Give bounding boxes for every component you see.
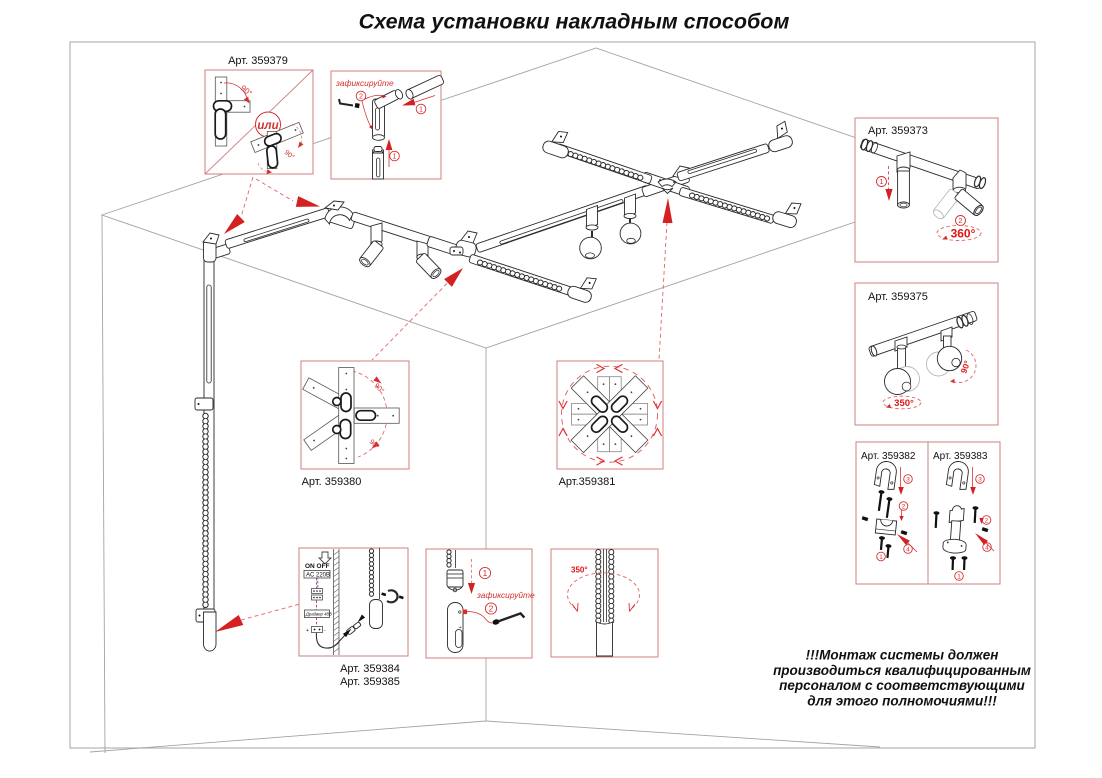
svg-text:Драйвер 48В: Драйвер 48В [305,612,332,617]
svg-text:зафиксируйте: зафиксируйте [476,590,535,600]
svg-text:+: + [306,628,309,634]
svg-text:Арт. 359384: Арт. 359384 [340,663,400,675]
svg-text:Схема установки накладным спос: Схема установки накладным способом [359,10,790,34]
svg-text:3: 3 [906,476,910,483]
svg-text:4: 4 [906,546,910,553]
svg-text:Арт. 359385: Арт. 359385 [340,676,400,688]
svg-text:3: 3 [978,476,982,483]
svg-text:Арт. 359382: Арт. 359382 [861,451,916,462]
svg-text:1: 1 [419,105,423,114]
svg-text:Арт. 359375: Арт. 359375 [868,291,928,303]
svg-text:1: 1 [483,568,488,578]
svg-text:для этого полномочиями!!!: для этого полномочиями!!! [807,693,997,708]
svg-text:2: 2 [902,503,906,510]
svg-text:2: 2 [359,92,363,101]
svg-text:Арт.359381: Арт.359381 [559,476,616,488]
svg-text:или: или [257,120,278,132]
svg-text:производиться квалифицированны: производиться квалифицированным [773,663,1031,678]
svg-text:зафиксируйте: зафиксируйте [335,78,394,88]
svg-text:2: 2 [958,216,962,225]
svg-text:Арт. 359379: Арт. 359379 [228,55,288,67]
svg-text:Арт. 359380: Арт. 359380 [302,476,362,488]
svg-text:Арт. 359373: Арт. 359373 [868,125,928,137]
svg-text:1: 1 [393,152,397,161]
svg-text:360°: 360° [951,227,976,241]
svg-text:!!!Монтаж системы должен: !!!Монтаж системы должен [806,648,999,663]
svg-text:1: 1 [879,554,883,561]
svg-text:350°: 350° [894,398,914,409]
svg-text:AC 220В: AC 220В [306,573,330,579]
svg-text:4: 4 [985,544,989,551]
svg-text:персоналом с соответствующими: персоналом с соответствующими [779,678,1025,693]
svg-text:Арт. 359383: Арт. 359383 [933,451,988,462]
svg-text:1: 1 [879,177,883,186]
svg-text:1: 1 [957,573,961,580]
svg-text:350°: 350° [571,566,588,575]
svg-text:2: 2 [489,604,494,614]
svg-text:2: 2 [985,517,989,524]
svg-text:ON OFF: ON OFF [305,563,330,570]
